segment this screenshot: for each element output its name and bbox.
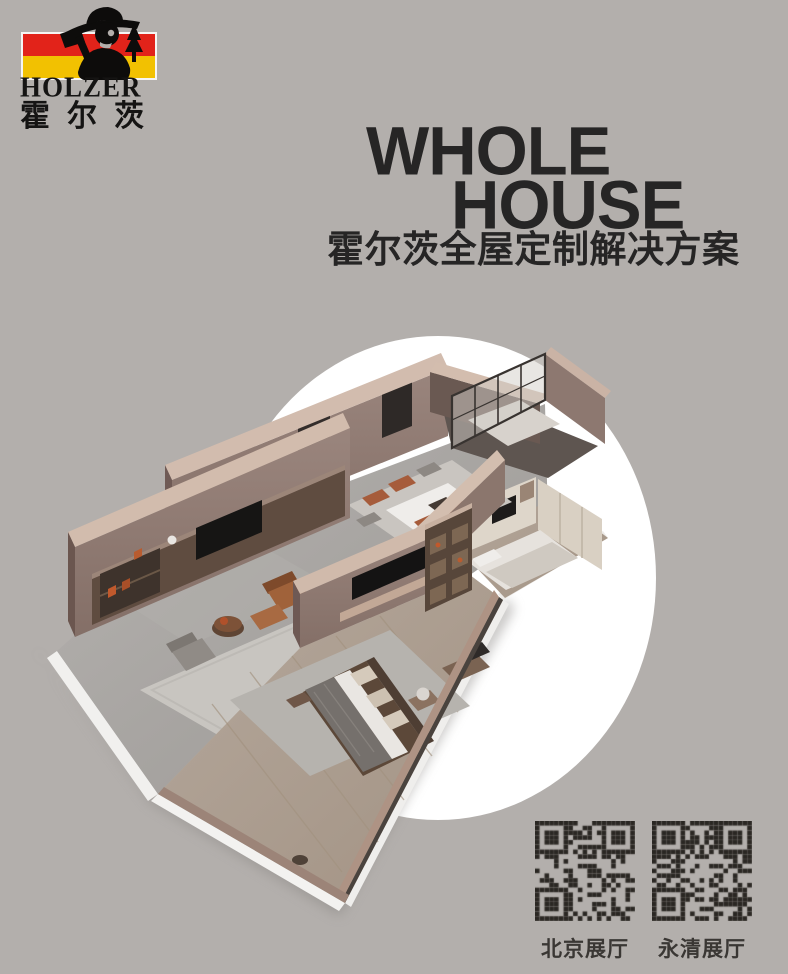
qr-label-yongqing: 永清展厅 xyxy=(652,933,752,963)
qr-label-beijing: 北京展厅 xyxy=(535,933,635,963)
qr-code-yongqing xyxy=(652,821,752,921)
qr-code-beijing xyxy=(535,821,635,921)
qr-yongqing: 永清展厅 xyxy=(652,821,752,963)
qr-beijing: 北京展厅 xyxy=(535,821,635,963)
poster: { "page": { "background": "#b3afac" }, "… xyxy=(0,0,788,974)
